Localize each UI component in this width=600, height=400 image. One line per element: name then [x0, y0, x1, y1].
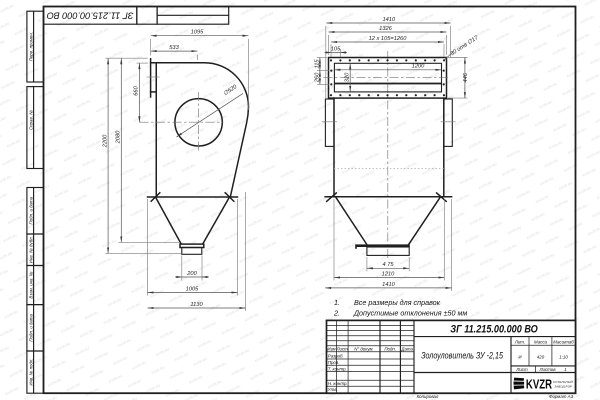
- svg-text:Листов: Листов: [539, 367, 557, 372]
- svg-text:Допустимые отклонения ±50 мм: Допустимые отклонения ±50 мм: [353, 308, 467, 317]
- svg-text:4 75: 4 75: [382, 262, 394, 268]
- svg-text:1410: 1410: [382, 17, 395, 23]
- svg-text:320: 320: [344, 72, 350, 82]
- svg-text:ЗГ 11.215.00.000 ВО: ЗГ 11.215.00.000 ВО: [450, 324, 538, 336]
- svg-text:1210: 1210: [382, 271, 395, 277]
- svg-text:Формат А3: Формат А3: [549, 394, 574, 399]
- svg-text:Копировал: Копировал: [417, 394, 439, 399]
- svg-text:1095: 1095: [191, 30, 204, 36]
- svg-text:Подп.: Подп.: [384, 347, 396, 352]
- svg-text:660: 660: [134, 85, 140, 95]
- svg-text:12 х 105=1260: 12 х 105=1260: [369, 36, 408, 42]
- svg-text:Разраб.: Разраб.: [328, 354, 344, 359]
- svg-text:Взам. инв. №: Взам. инв. №: [28, 271, 33, 298]
- svg-text:1130: 1130: [190, 302, 203, 308]
- svg-text:ЗАВОД РЭР: ЗАВОД РЭР: [554, 385, 573, 389]
- svg-text:2.: 2.: [333, 308, 340, 317]
- svg-text:446: 446: [463, 72, 469, 82]
- svg-text:Н. контр.: Н. контр.: [328, 381, 348, 386]
- svg-text:Лист: Лист: [336, 347, 349, 352]
- svg-text:260: 260: [314, 72, 320, 83]
- svg-text:105: 105: [331, 46, 341, 52]
- svg-text:Все размеры для справок: Все размеры для справок: [354, 298, 441, 307]
- svg-text:200: 200: [186, 271, 197, 277]
- svg-text:Инв. № дубл.: Инв. № дубл.: [28, 236, 33, 263]
- svg-text:Золоуловитель ЗУ -2,15: Золоуловитель ЗУ -2,15: [421, 350, 503, 360]
- svg-text:Перв. примен.: Перв. примен.: [28, 32, 33, 61]
- svg-text:Подп. и дата: Подп. и дата: [28, 314, 33, 342]
- svg-text:N° докум.: N° докум.: [354, 347, 374, 352]
- svg-text:533: 533: [169, 45, 179, 51]
- svg-text:КОТЕЛЬНЫЙ: КОТЕЛЬНЫЙ: [553, 380, 573, 384]
- svg-text:1200: 1200: [412, 64, 425, 70]
- svg-text:Т. контр.: Т. контр.: [328, 366, 347, 371]
- svg-text:Масса: Масса: [534, 339, 548, 344]
- svg-text:KVZR: KVZR: [526, 378, 553, 392]
- svg-text:Лист: Лист: [515, 367, 528, 372]
- svg-text:2200: 2200: [102, 134, 108, 148]
- svg-text:1326: 1326: [379, 26, 392, 32]
- svg-text:Подп. и дата: Подп. и дата: [28, 196, 33, 224]
- svg-text:ЗГ 11.215.00.000 ВО: ЗГ 11.215.00.000 ВО: [47, 10, 134, 20]
- svg-text:Изм: Изм: [327, 347, 335, 352]
- svg-text:Масштаб: Масштаб: [553, 339, 574, 344]
- svg-text:Дата: Дата: [400, 347, 413, 352]
- svg-text:Утв.: Утв.: [328, 387, 338, 392]
- svg-text:Лит.: Лит.: [514, 339, 525, 344]
- svg-text:Справ. №: Справ. №: [28, 110, 33, 130]
- svg-text:Инв. № подл.: Инв. № подл.: [28, 358, 33, 385]
- svg-text:420: 420: [537, 355, 545, 360]
- svg-text:Пров.: Пров.: [328, 360, 340, 365]
- svg-text:1005: 1005: [186, 286, 199, 292]
- svg-text:115: 115: [314, 59, 320, 69]
- svg-text:1.: 1.: [334, 298, 340, 307]
- svg-text:1410: 1410: [382, 282, 395, 288]
- svg-text:1:10: 1:10: [559, 355, 568, 360]
- svg-text:2080: 2080: [116, 130, 122, 144]
